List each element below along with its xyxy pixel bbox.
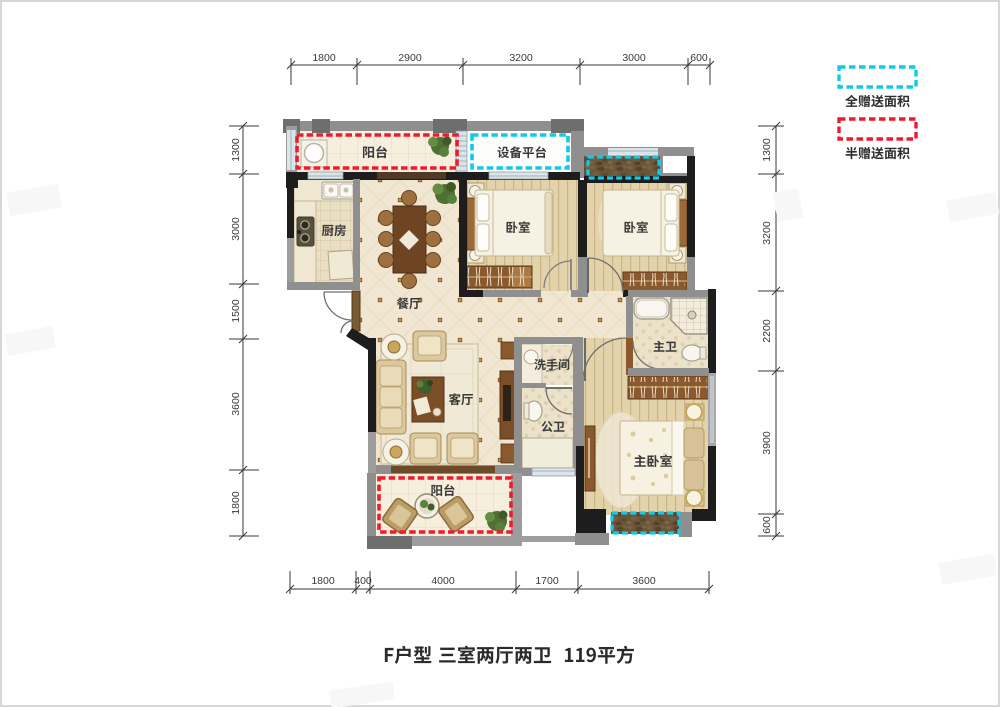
svg-text:3000: 3000 [622, 52, 646, 64]
svg-text:1800: 1800 [311, 575, 335, 587]
svg-text:1300: 1300 [230, 138, 242, 162]
svg-text:3200: 3200 [761, 221, 773, 245]
svg-text:1300: 1300 [761, 138, 773, 162]
svg-text:600: 600 [761, 516, 773, 534]
svg-text:2900: 2900 [398, 52, 422, 64]
svg-text:1700: 1700 [535, 575, 559, 587]
svg-text:1500: 1500 [230, 299, 242, 323]
svg-text:400: 400 [354, 575, 372, 587]
svg-text:3000: 3000 [230, 217, 242, 241]
svg-text:1800: 1800 [230, 491, 242, 515]
svg-text:3600: 3600 [230, 392, 242, 416]
svg-text:2200: 2200 [761, 319, 773, 343]
svg-text:3200: 3200 [509, 52, 533, 64]
svg-text:4000: 4000 [431, 575, 455, 587]
svg-text:3600: 3600 [632, 575, 656, 587]
svg-text:1800: 1800 [312, 52, 336, 64]
svg-text:600: 600 [690, 52, 708, 64]
svg-text:3900: 3900 [761, 431, 773, 455]
